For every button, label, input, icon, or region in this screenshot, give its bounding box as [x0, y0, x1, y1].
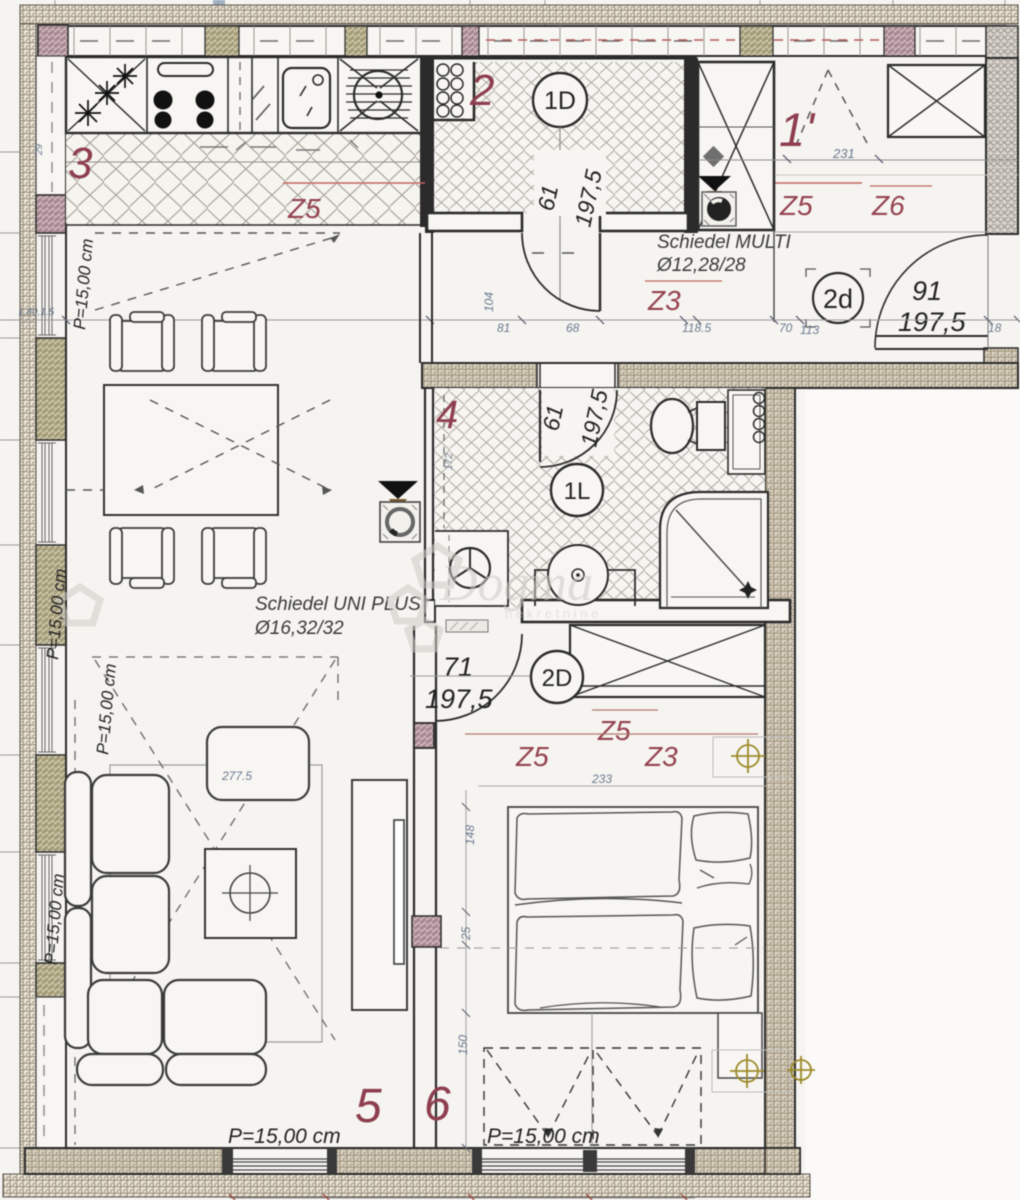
svg-text:1D: 1D — [544, 87, 576, 115]
svg-text:3: 3 — [68, 139, 93, 188]
svg-text:118.5: 118.5 — [682, 321, 711, 335]
svg-text:Z5: Z5 — [515, 741, 549, 772]
svg-text:197,5: 197,5 — [898, 307, 967, 337]
svg-text:2d: 2d — [823, 284, 853, 314]
svg-text:Z3: Z3 — [644, 741, 678, 772]
svg-text:Z5: Z5 — [779, 190, 813, 221]
svg-text:P=15,00 cm: P=15,00 cm — [228, 1125, 341, 1148]
svg-text:233: 233 — [591, 772, 612, 786]
svg-text:71: 71 — [443, 652, 473, 682]
svg-text:Z6: Z6 — [871, 190, 905, 221]
svg-text:5: 5 — [355, 1080, 382, 1133]
svg-text:104: 104 — [482, 292, 496, 312]
svg-text:91: 91 — [912, 276, 942, 306]
svg-text:172: 172 — [444, 453, 455, 470]
svg-text:n e k r e t n i n e: n e k r e t n i n e — [505, 606, 598, 621]
svg-text:1.80,1.5: 1.80,1.5 — [18, 307, 55, 318]
svg-text:277.5: 277.5 — [221, 769, 252, 783]
svg-text:1': 1' — [779, 103, 816, 156]
svg-text:61: 61 — [537, 403, 568, 433]
svg-text:70: 70 — [779, 321, 793, 335]
svg-text:Ø12,28/28: Ø12,28/28 — [656, 255, 746, 276]
svg-text:148: 148 — [463, 825, 477, 845]
svg-text:18: 18 — [988, 321, 1002, 335]
svg-text:25: 25 — [459, 926, 473, 941]
svg-text:150: 150 — [456, 1035, 470, 1055]
svg-text:113: 113 — [800, 323, 819, 337]
svg-text:197,5: 197,5 — [425, 684, 494, 714]
svg-text:Z3: Z3 — [647, 285, 681, 316]
svg-text:Z5: Z5 — [287, 193, 321, 224]
svg-text:6: 6 — [424, 1078, 451, 1131]
svg-text:Dogma: Dogma — [439, 555, 593, 612]
svg-text:61: 61 — [532, 183, 563, 213]
svg-text:4: 4 — [436, 393, 458, 437]
svg-text:29: 29 — [34, 143, 45, 156]
svg-text:P=15,00 cm: P=15,00 cm — [487, 1125, 600, 1148]
svg-text:1L: 1L — [564, 478, 591, 505]
svg-text:231: 231 — [832, 146, 855, 161]
svg-text:Ø16,32/32: Ø16,32/32 — [254, 618, 344, 639]
svg-text:68: 68 — [566, 321, 580, 335]
svg-text:Schiedel MULTI: Schiedel MULTI — [657, 232, 791, 253]
svg-text:2D: 2D — [542, 665, 573, 692]
svg-text:2: 2 — [469, 66, 494, 115]
svg-text:81: 81 — [497, 321, 510, 335]
svg-text:Z5: Z5 — [597, 715, 631, 746]
